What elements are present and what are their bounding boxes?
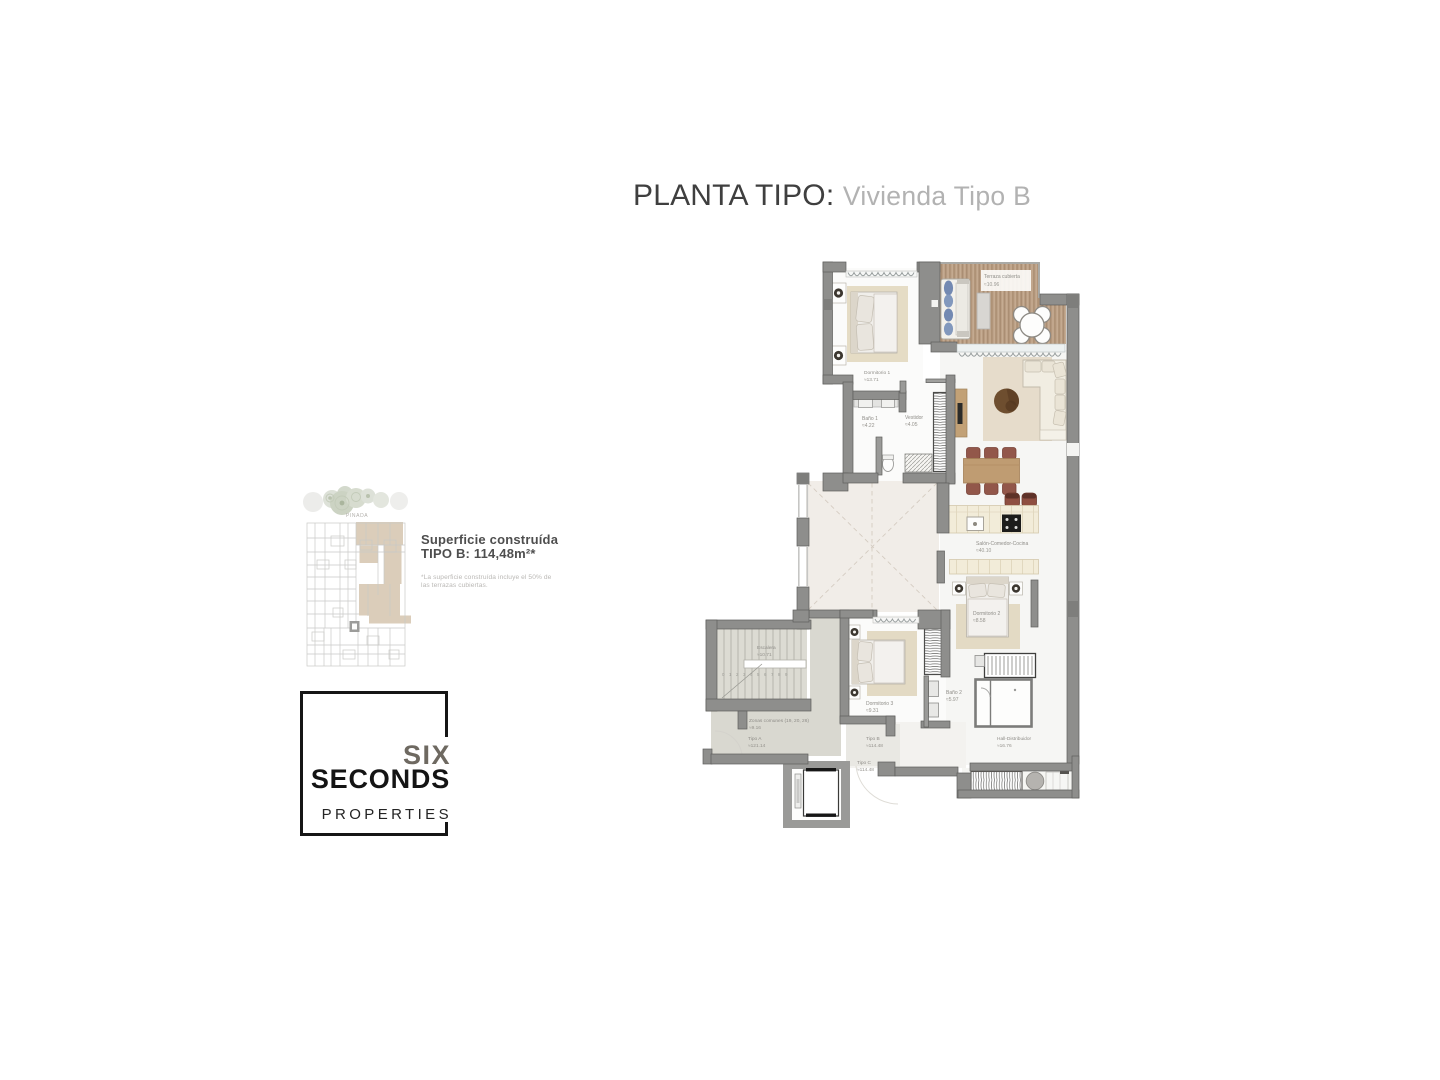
svg-text:≈10.71: ≈10.71 — [757, 652, 772, 658]
svg-text:≈5.97: ≈5.97 — [946, 697, 959, 703]
svg-text:≈114.48: ≈114.48 — [866, 743, 883, 749]
svg-text:≈8.58: ≈8.58 — [973, 618, 986, 624]
svg-text:Terraza cubierta: Terraza cubierta — [984, 274, 1020, 280]
svg-text:≈4.05: ≈4.05 — [905, 422, 918, 428]
svg-text:Escalera: Escalera — [757, 645, 776, 651]
svg-text:≈10.96: ≈10.96 — [984, 282, 999, 288]
svg-text:Tipo B: Tipo B — [866, 736, 880, 742]
svg-text:≈13.71: ≈13.71 — [864, 377, 879, 383]
svg-text:Dormitorio 2: Dormitorio 2 — [973, 611, 1000, 617]
svg-text:≈9.16: ≈9.16 — [749, 725, 761, 731]
svg-text:Hall-Distribuidor: Hall-Distribuidor — [997, 736, 1032, 742]
svg-text:Baño 2: Baño 2 — [946, 690, 962, 696]
svg-text:Baño 1: Baño 1 — [862, 416, 878, 422]
svg-text:≈4.22: ≈4.22 — [862, 423, 875, 429]
svg-text:Tipo C: Tipo C — [857, 760, 871, 766]
svg-text:≈9.31: ≈9.31 — [866, 708, 879, 714]
svg-text:Zonas comunes (19, 20, 26): Zonas comunes (19, 20, 26) — [749, 718, 809, 724]
svg-text:≈114.48: ≈114.48 — [857, 767, 874, 773]
svg-text:Tipo A: Tipo A — [748, 736, 762, 742]
svg-text:Dormitorio 3: Dormitorio 3 — [866, 701, 893, 707]
svg-text:≈40.10: ≈40.10 — [976, 548, 991, 554]
svg-text:Vestidor: Vestidor — [905, 415, 923, 421]
svg-text:PINADA: PINADA — [346, 513, 368, 519]
svg-text:Dormitorio 1: Dormitorio 1 — [864, 370, 890, 376]
svg-text:≈16.76: ≈16.76 — [997, 743, 1012, 749]
svg-text:Salón-Comedor-Cocina: Salón-Comedor-Cocina — [976, 541, 1028, 547]
svg-text:≈121.14: ≈121.14 — [748, 743, 766, 749]
